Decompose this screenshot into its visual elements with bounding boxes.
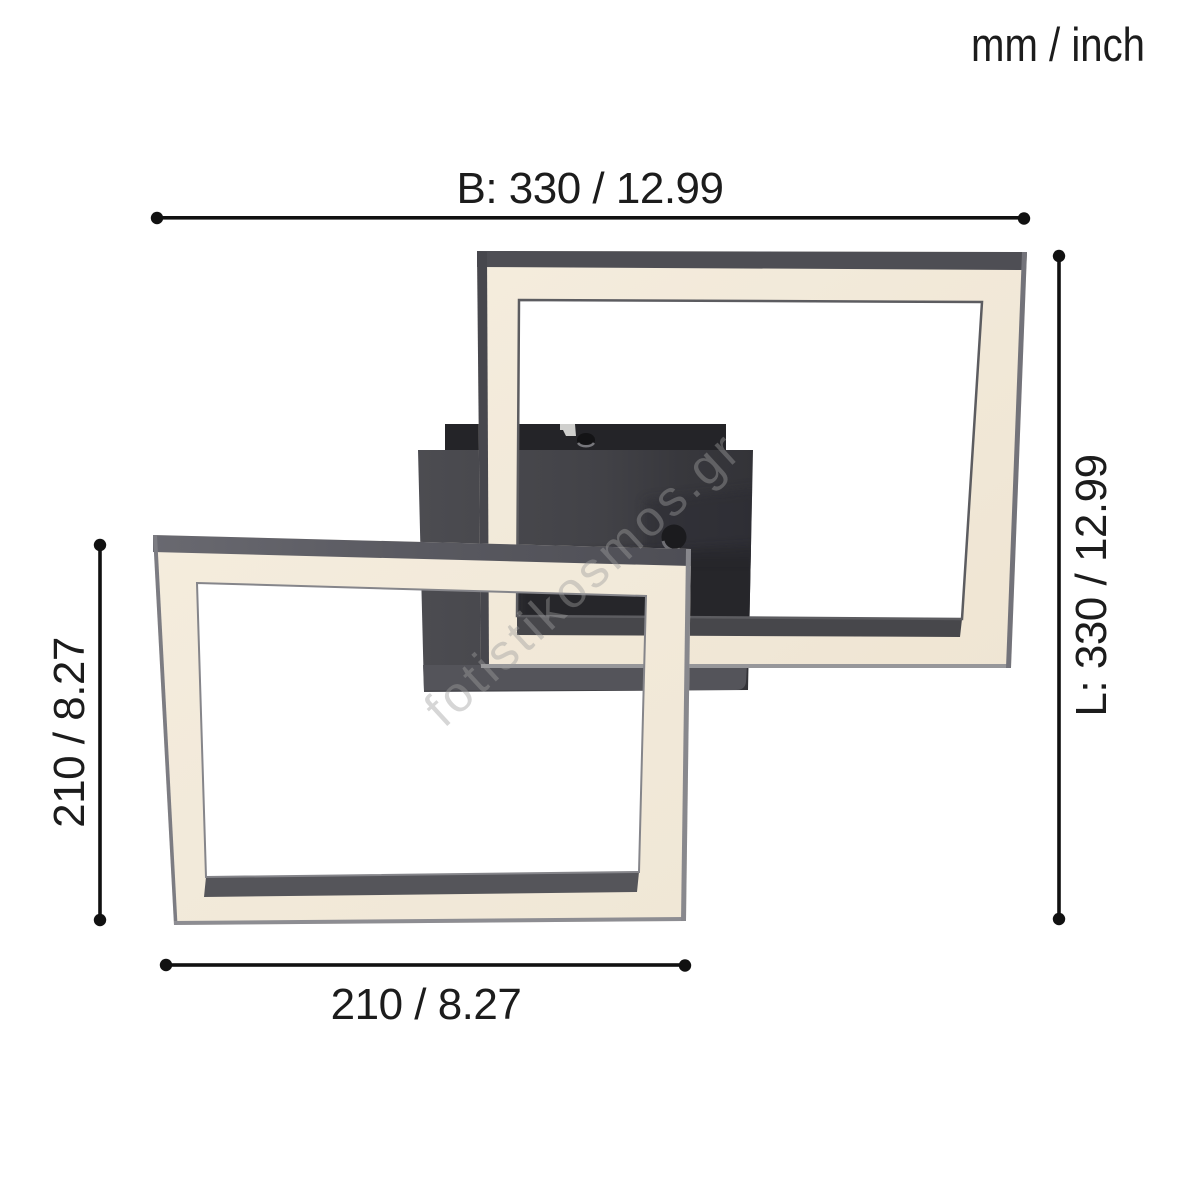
svg-text:mm / inch: mm / inch <box>971 18 1145 71</box>
svg-text:210 / 8.27: 210 / 8.27 <box>331 980 522 1029</box>
svg-text:210 / 8.27: 210 / 8.27 <box>45 637 94 828</box>
svg-text:L: 330 / 12.99: L: 330 / 12.99 <box>1067 454 1116 716</box>
svg-text:B: 330 / 12.99: B: 330 / 12.99 <box>457 164 724 213</box>
